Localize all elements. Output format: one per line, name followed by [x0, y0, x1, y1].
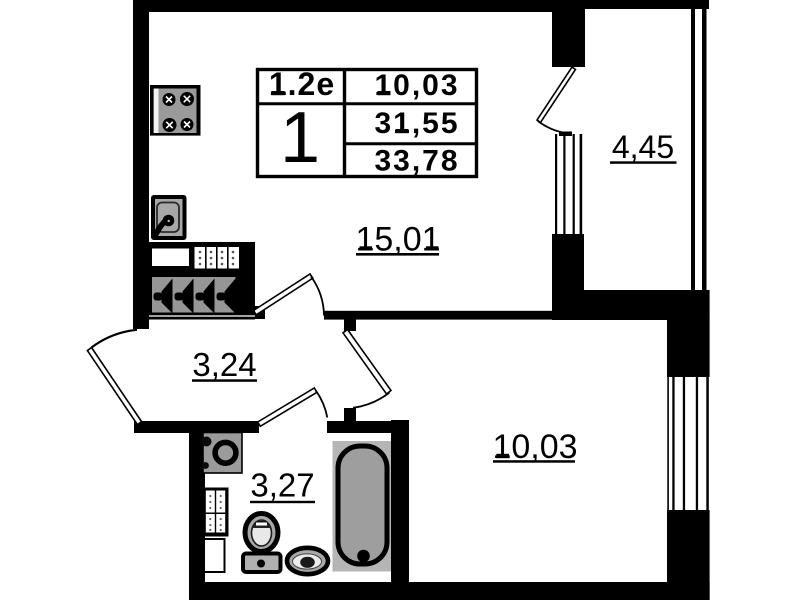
svg-text:1: 1 — [280, 98, 320, 178]
svg-text:15,01: 15,01 — [355, 221, 440, 259]
svg-text:3,27: 3,27 — [250, 467, 314, 504]
svg-text:33,78: 33,78 — [374, 145, 459, 178]
svg-text:31,55: 31,55 — [374, 107, 459, 140]
svg-text:10,03: 10,03 — [374, 69, 459, 102]
svg-text:3,24: 3,24 — [192, 346, 256, 383]
svg-text:1.2e: 1.2e — [269, 66, 335, 102]
svg-text:4,45: 4,45 — [612, 129, 674, 165]
